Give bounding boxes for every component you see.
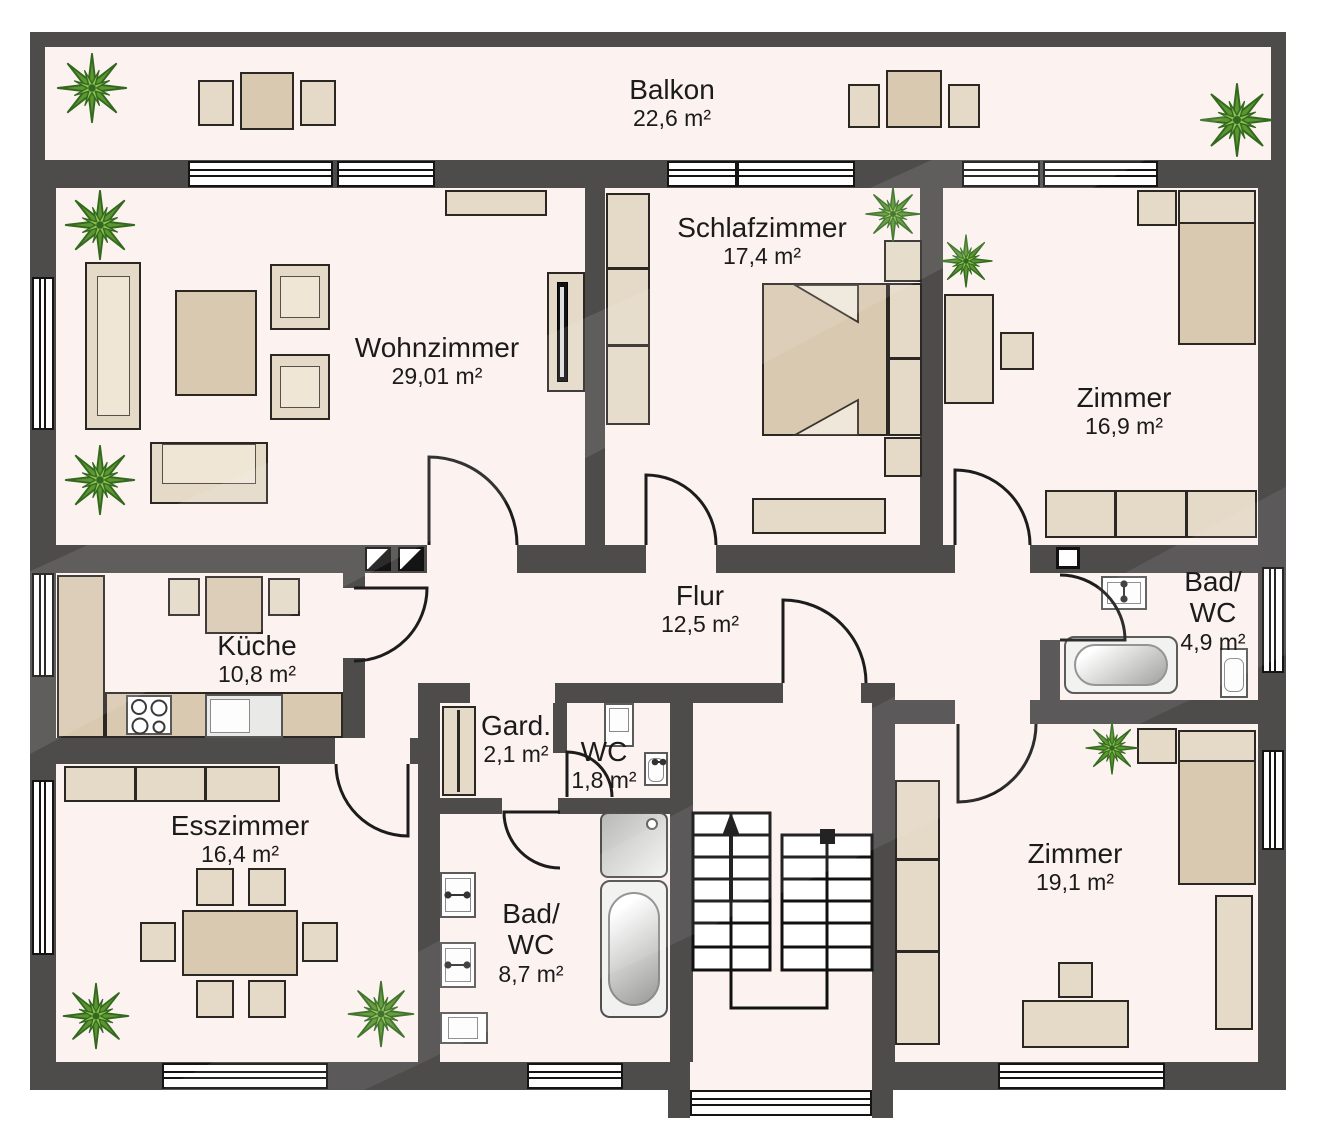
wall — [585, 160, 605, 573]
wardrobe-divider — [606, 267, 650, 270]
wall — [30, 738, 335, 764]
room-area: 2,1 m² — [481, 741, 551, 769]
sink-basin — [609, 708, 629, 732]
wardrobe-divider — [895, 950, 940, 953]
wall — [430, 798, 502, 814]
balcony-chair — [300, 80, 336, 126]
room-name: Flur — [661, 580, 739, 611]
coffee-table — [175, 290, 257, 396]
shelf — [1215, 895, 1253, 1030]
wardrobe-divider — [606, 344, 650, 347]
wall — [872, 683, 895, 1062]
wardrobe — [606, 193, 650, 425]
room-name: Schlafzimmer — [677, 212, 847, 243]
sideboard-divider — [134, 766, 137, 802]
wall — [1030, 700, 1258, 724]
desk — [1022, 1000, 1129, 1048]
wall — [418, 683, 470, 703]
room-name: Zimmer — [1077, 382, 1172, 413]
window — [998, 1063, 1165, 1089]
window — [188, 161, 333, 187]
wall — [30, 32, 45, 163]
nightstand — [1137, 190, 1177, 226]
wardrobe — [1045, 490, 1257, 538]
room-label-esszimmer: Esszimmer 16,4 m² — [171, 810, 309, 869]
chair — [196, 980, 234, 1018]
sideboard-divider — [204, 766, 207, 802]
window — [1262, 567, 1284, 673]
window — [527, 1063, 623, 1089]
chair — [168, 578, 200, 616]
kitchen-sink-basin — [210, 699, 250, 733]
room-area: 1,8 m² — [571, 767, 636, 795]
window — [737, 161, 855, 187]
room-label-bad-wc-klein: Bad/ WC 4,9 m² — [1180, 566, 1245, 656]
room-label-wc: WC 1,8 m² — [571, 736, 636, 795]
kitchen-table — [205, 576, 263, 634]
wall — [920, 160, 943, 573]
wall — [1040, 640, 1060, 702]
nightstand — [884, 240, 922, 282]
room-label-zimmer-oben: Zimmer 16,9 m² — [1077, 382, 1172, 441]
room-area: 19,1 m² — [1028, 869, 1123, 897]
room-name: Bad/ WC — [498, 898, 563, 961]
bathtub-basin — [1074, 644, 1168, 686]
window — [32, 277, 54, 430]
room-name: Wohnzimmer — [355, 332, 519, 363]
floor-plan: Balkon 22,6 m² Wohnzimmer 29,01 m² Schla… — [0, 0, 1317, 1144]
window — [962, 161, 1040, 187]
headboard-divider — [888, 357, 922, 360]
wall — [343, 545, 365, 588]
sink-basin — [1107, 582, 1141, 604]
wardrobe-divider — [895, 858, 940, 861]
room-label-garderobe: Gard. 2,1 m² — [481, 710, 551, 769]
room-area: 8,7 m² — [498, 961, 563, 989]
window — [667, 161, 737, 187]
stairwell-floor — [690, 1062, 872, 1092]
wall — [30, 32, 1286, 47]
shaft-icon — [398, 547, 424, 571]
balcony-chair — [848, 84, 880, 128]
wardrobe — [895, 780, 940, 1045]
nightstand — [1137, 728, 1177, 764]
wall — [1271, 32, 1286, 163]
tv-screen — [560, 287, 564, 377]
sink-basin — [445, 878, 471, 912]
room-name: Bad/ WC — [1180, 566, 1245, 629]
bed-pillow — [1178, 190, 1256, 224]
room-name: Balkon — [629, 74, 715, 105]
window — [162, 1063, 328, 1089]
room-area: 4,9 m² — [1180, 629, 1245, 657]
wall — [716, 545, 943, 573]
sofa-seat — [97, 276, 130, 416]
desk-chair — [1000, 332, 1034, 370]
window — [690, 1090, 872, 1116]
chair — [248, 980, 286, 1018]
dresser — [752, 498, 886, 534]
wall — [56, 545, 360, 573]
wall — [872, 1062, 893, 1118]
wall — [943, 545, 955, 573]
toilet-bowl — [648, 758, 664, 782]
shower — [600, 812, 668, 878]
chair — [268, 578, 300, 616]
room-label-schlafzimmer: Schlafzimmer 17,4 m² — [677, 212, 847, 271]
wall — [693, 683, 783, 703]
room-area: 10,8 m² — [217, 661, 296, 689]
wall — [861, 683, 880, 703]
balcony-table — [240, 72, 294, 130]
kitchen-counter — [57, 575, 105, 738]
toilet-bowl — [448, 1017, 478, 1039]
wall — [668, 1062, 690, 1118]
chair — [248, 868, 286, 906]
room-label-wohnzimmer: Wohnzimmer 29,01 m² — [355, 332, 519, 391]
chair — [140, 922, 176, 962]
wall — [670, 683, 693, 1062]
coat-rack-rail — [457, 710, 460, 792]
room-label-flur: Flur 12,5 m² — [661, 580, 739, 639]
room-area: 22,6 m² — [629, 105, 715, 133]
window — [1262, 750, 1284, 850]
wall — [553, 703, 567, 753]
armchair-seat — [280, 276, 320, 318]
desk — [944, 294, 994, 404]
wall — [895, 700, 955, 724]
window — [32, 573, 54, 677]
room-name: Esszimmer — [171, 810, 309, 841]
sofa-seat — [162, 444, 256, 484]
balcony-chair — [198, 80, 234, 126]
room-label-balkon: Balkon 22,6 m² — [629, 74, 715, 133]
window — [1043, 161, 1158, 187]
shaft-icon — [365, 547, 391, 571]
chair — [302, 922, 338, 962]
toilet-bowl — [1224, 658, 1244, 692]
dining-table — [182, 910, 298, 976]
room-name: Gard. — [481, 710, 551, 741]
chair — [196, 868, 234, 906]
wardrobe-divider — [1185, 490, 1188, 538]
room-name: Küche — [217, 630, 296, 661]
shaft-icon — [1056, 547, 1080, 569]
double-bed — [762, 283, 888, 436]
nightstand — [884, 437, 922, 477]
wall — [418, 703, 440, 798]
balcony-table — [886, 70, 942, 128]
room-area: 16,4 m² — [171, 841, 309, 869]
bathtub-basin — [608, 892, 660, 1006]
window — [32, 780, 54, 955]
room-area: 16,9 m² — [1077, 413, 1172, 441]
sideboard — [64, 766, 280, 802]
stove-icon — [126, 695, 172, 735]
sideboard — [445, 190, 547, 216]
room-area: 29,01 m² — [355, 363, 519, 391]
sink-basin — [445, 948, 471, 982]
room-name: Zimmer — [1028, 838, 1123, 869]
desk-chair — [1058, 962, 1093, 998]
room-name: WC — [571, 736, 636, 767]
room-area: 12,5 m² — [661, 611, 739, 639]
wardrobe-divider — [1114, 490, 1117, 538]
room-label-bad-wc-gross: Bad/ WC 8,7 m² — [498, 898, 563, 988]
balcony-chair — [948, 84, 980, 128]
wall — [343, 658, 365, 738]
armchair-seat — [280, 366, 320, 408]
wall — [605, 545, 646, 573]
bed-pillow — [1178, 730, 1256, 762]
window — [337, 161, 435, 187]
room-label-kueche: Küche 10,8 m² — [217, 630, 296, 689]
room-area: 17,4 m² — [677, 243, 847, 271]
room-label-zimmer-unten: Zimmer 19,1 m² — [1028, 838, 1123, 897]
